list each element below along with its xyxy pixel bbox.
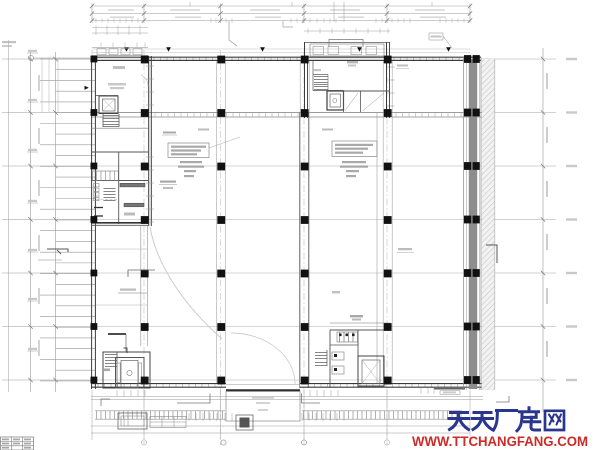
svg-text:WWW.TTCHANGFANG.COM: WWW.TTCHANGFANG.COM <box>412 433 588 449</box>
